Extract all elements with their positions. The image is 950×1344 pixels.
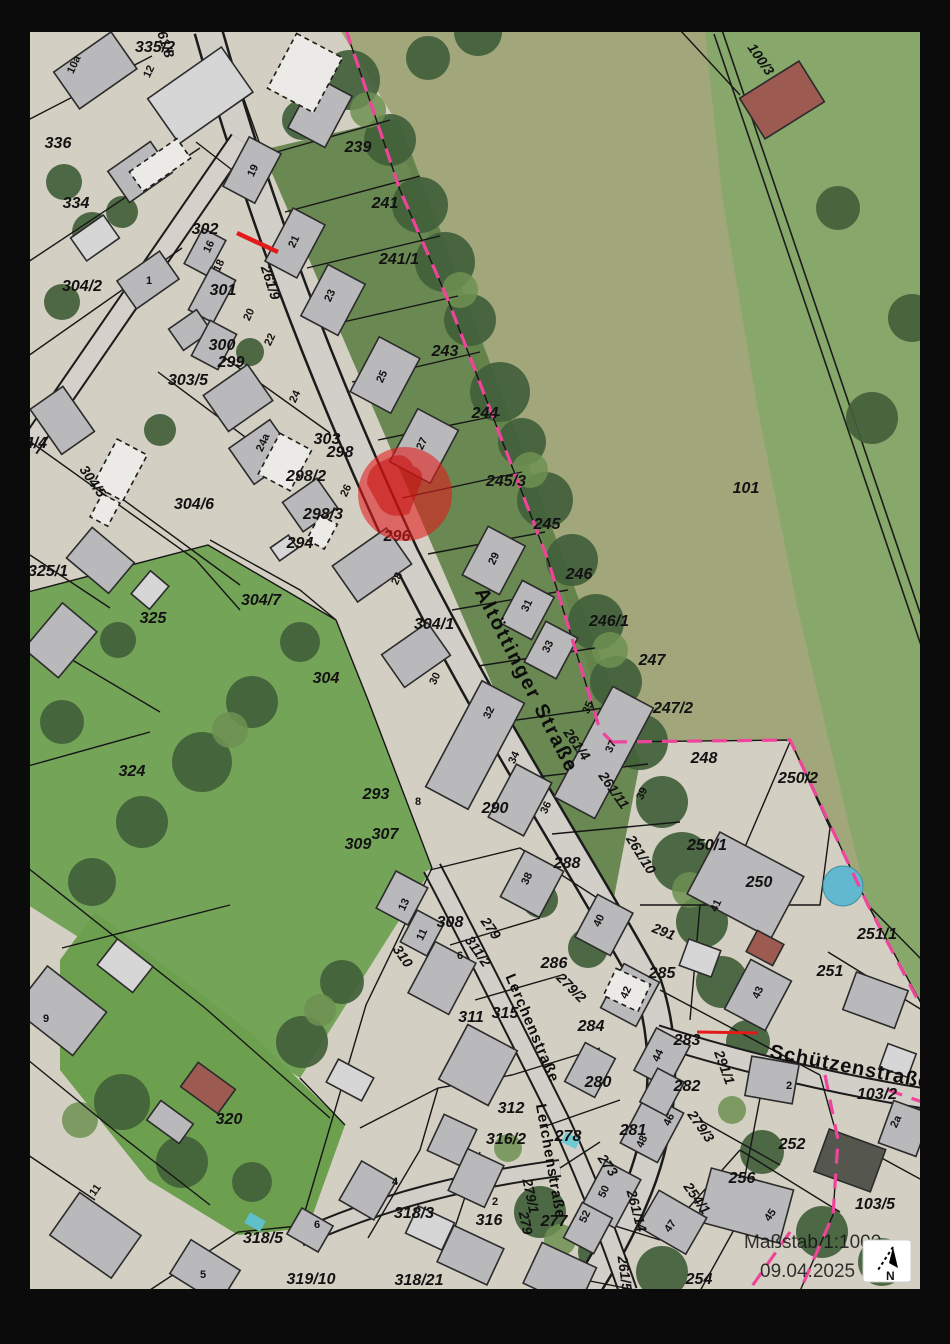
red-line-south	[697, 1032, 758, 1033]
parcel-number-label: 103/5	[855, 1196, 896, 1213]
parcel-number-label: 103/2	[857, 1086, 897, 1103]
parcel-number-label: 304/7	[241, 592, 282, 609]
parcel-number-label: 283	[673, 1032, 701, 1049]
parcel-number-label: 286	[540, 955, 568, 972]
parcel-number-label: 241	[371, 195, 399, 212]
parcel-number-label: 298	[326, 444, 354, 461]
house-number-label: 2	[492, 1196, 498, 1208]
parcel-number-label: 280	[584, 1074, 612, 1091]
parcel-number-label: 316	[476, 1212, 503, 1229]
house-number-label: 9	[43, 1013, 49, 1025]
parcel-number-label: 320	[216, 1111, 243, 1128]
parcel-number-label: 298/3	[302, 506, 343, 523]
swimming-pool	[823, 866, 863, 906]
parcel-number-label: 251	[816, 963, 844, 980]
parcel-number-label: 325/1	[28, 563, 68, 580]
parcel-number-label: 256	[728, 1170, 756, 1187]
cadastral-map-viewport: 335/2336334302301300299303/5304/24/4304/…	[0, 0, 950, 1344]
parcel-number-label: 302	[192, 221, 219, 238]
parcel-number-label: 318/3	[394, 1205, 434, 1222]
parcel-number-label: 250/2	[777, 770, 818, 787]
parcel-number-label: 304/1	[414, 616, 454, 633]
house-number-label: 1	[146, 275, 152, 287]
parcel-number-label: 336	[45, 135, 72, 152]
parcel-number-label: 307	[372, 826, 400, 843]
parcel-number-label: 247/2	[652, 700, 693, 717]
parcel-number-label: 293	[362, 786, 390, 803]
parcel-number-label: 301	[210, 282, 237, 299]
parcel-number-label: 246	[565, 566, 593, 583]
house-number-label: 6	[314, 1219, 320, 1231]
cadastral-map-svg: 335/2336334302301300299303/5304/24/4304/…	[0, 0, 950, 1344]
parcel-number-label: 285	[648, 965, 677, 982]
north-arrow: N	[863, 1240, 911, 1283]
house-number-label: 5	[200, 1269, 206, 1281]
house-number-label: 8	[415, 796, 421, 808]
parcel-number-label: 101	[733, 480, 760, 497]
parcel-number-label: 252	[778, 1136, 806, 1153]
parcel-number-label: 304/2	[62, 278, 102, 295]
parcel-number-label: 239	[344, 139, 372, 156]
parcel-number-label: 278	[554, 1128, 582, 1145]
parcel-number-label: 311	[458, 1009, 484, 1026]
date-label: 09.04.2025	[760, 1261, 855, 1282]
parcel-number-label: 288	[553, 855, 581, 872]
house-number-label: 6	[457, 950, 463, 962]
parcel-number-label: 254	[685, 1271, 713, 1288]
parcel-number-label: 309	[345, 836, 372, 853]
parcel-number-label: 245	[533, 516, 562, 533]
parcel-number-label: 312	[498, 1100, 525, 1117]
parcel-number-label: 324	[119, 763, 146, 780]
parcel-number-label: 299	[217, 354, 245, 371]
parcel-number-label: 241/1	[378, 251, 419, 268]
house-number-label: 2	[786, 1080, 792, 1092]
parcel-number-label: 334	[63, 195, 90, 212]
parcel-number-label: 282	[673, 1078, 701, 1095]
scale-label: Maßstab 1:1000	[744, 1232, 881, 1253]
parcel-number-label: 246/1	[588, 613, 629, 630]
parcel-number-label: 250	[745, 874, 773, 891]
map-content: 335/2336334302301300299303/5304/24/4304/…	[14, 8, 936, 1309]
house-number-label: 4	[392, 1176, 399, 1188]
parcel-number-label: 247	[638, 652, 667, 669]
parcel-number-label: 294	[286, 535, 314, 552]
parcel-number-label: 251/1	[856, 926, 897, 943]
parcel-number-label: 245/3	[485, 473, 526, 490]
parcel-number-label: 318/21	[395, 1272, 444, 1289]
parcel-number-label: 304	[313, 670, 340, 687]
parcel-number-label: 325	[140, 610, 168, 627]
parcel-number-label: 308	[437, 914, 464, 931]
parcel-number-label: 248	[690, 750, 718, 767]
parcel-number-label: 316/2	[486, 1131, 526, 1148]
north-arrow-label: N	[886, 1269, 895, 1283]
parcel-number-label: 303/5	[168, 372, 209, 389]
parcel-number-label: 298/2	[285, 468, 326, 485]
parcel-number-label: 318/5	[243, 1230, 284, 1247]
parcel-number-label: 284	[577, 1018, 605, 1035]
parcel-number-label: 300	[209, 337, 236, 354]
parcel-number-label: 319/10	[287, 1271, 336, 1288]
parcel-number-label: 243	[431, 343, 459, 360]
parcel-number-label: 250/1	[686, 837, 727, 854]
parcel-number-label: 244	[471, 405, 499, 422]
parcel-number-label: 304/6	[174, 496, 214, 513]
parcel-number-label: 290	[481, 800, 509, 817]
